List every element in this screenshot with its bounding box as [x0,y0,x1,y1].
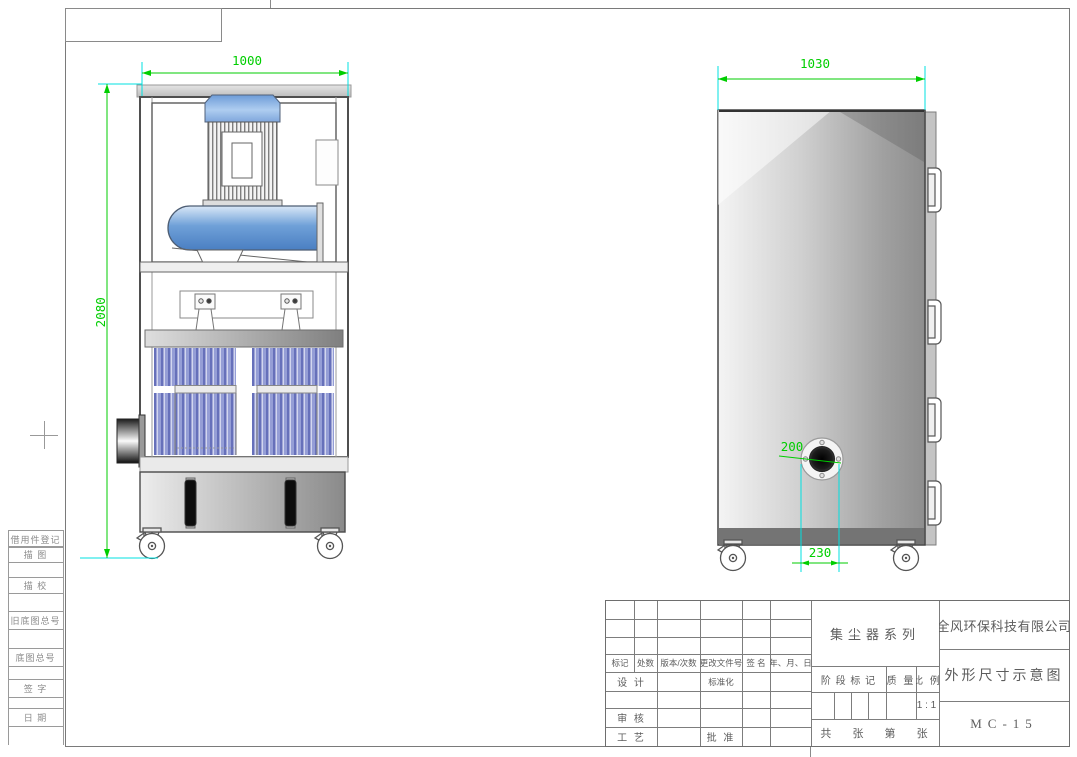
tb-stage-mark: 阶 段 标 记 [811,666,886,692]
tb-standardization: 标准化 [700,672,742,691]
tb-scale: 比 例 [916,666,939,692]
tb-header-mark: 标记 [606,654,634,672]
tb-model-number: MC-15 [939,701,1069,746]
centering-mark-top [270,0,271,8]
margin-label: 描 校 [8,577,63,594]
dim-inlet-diameter: 200 [772,441,812,454]
margin-label: 底图总号 [8,648,63,667]
drawing-sheet: 借用件登记 描 图 描 校 旧底图总号 底图总号 签 字 日 期 1000 20… [0,0,1077,757]
tb-drawing-title: 外形尺寸示意图 [939,649,1069,701]
tb-design: 设 计 [606,672,657,691]
title-block: 标记 处数 版本/次数 更改文件号 签 名 年、月、日 设 计 标准化 审 核 … [605,600,1070,747]
dim-inlet-offset: 230 [800,547,840,560]
tb-company: 全风环保科技有限公司 [939,601,1069,649]
tb-header-docno: 更改文件号 [700,654,742,672]
tb-sheet-info: 共 张 第 张 [811,719,939,746]
dim-front-height: 2080 [95,277,108,347]
tb-review: 审 核 [606,708,657,727]
dim-front-width: 1000 [212,55,282,68]
dim-side-width: 1030 [780,58,850,71]
tb-header-version: 版本/次数 [657,654,700,672]
tb-scale-value: 1 : 1 [914,692,939,719]
tb-header-count: 处数 [634,654,657,672]
tb-header-date: 年、月、日 [770,654,811,672]
margin-label: 日 期 [8,708,63,727]
margin-label: 旧底图总号 [8,611,63,630]
tb-mass: 质 量 [886,666,916,692]
margin-label: 描 图 [8,546,63,563]
tb-header-sign: 签 名 [742,654,770,672]
tb-approve: 批 准 [700,727,742,746]
centering-mark-left [44,421,45,449]
frame-corner-box [65,8,222,42]
margin-label: 签 字 [8,679,63,698]
tb-process: 工 艺 [606,727,657,746]
tb-series-title: 集尘器系列 [811,601,939,666]
